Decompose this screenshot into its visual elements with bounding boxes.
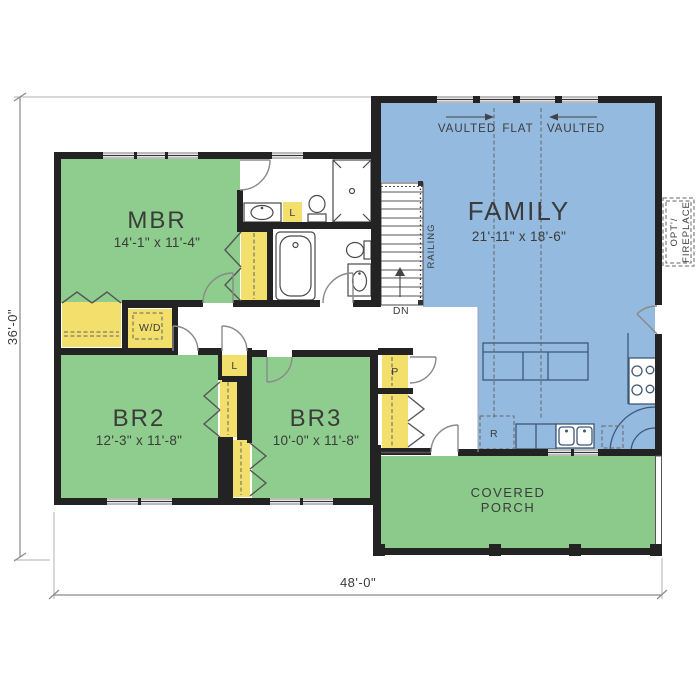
family-right-wall-upper xyxy=(655,96,662,305)
floor-plan: MBR 14'-1" x 11'-4" FAMILY 21'-11" x 18'… xyxy=(0,0,700,700)
br3-label: BR3 xyxy=(290,405,343,432)
width-dimension: 48'-0" xyxy=(340,575,376,590)
porch-post xyxy=(373,544,385,556)
master-toilet-tank xyxy=(308,214,326,222)
br2-label: BR2 xyxy=(113,405,166,432)
porch-label-line1: COVERED xyxy=(471,485,546,500)
family-label: FAMILY xyxy=(468,196,571,226)
linen-hall-label: L xyxy=(231,360,237,372)
porch-post xyxy=(489,544,501,556)
mbr-dims: 14'-1" x 11'-4" xyxy=(114,235,201,250)
bedroom-left-wall xyxy=(54,152,61,505)
height-dimension: 36'-0" xyxy=(5,309,20,345)
porch-bottom-wall xyxy=(373,548,662,555)
refrigerator-label: R xyxy=(490,428,498,440)
shower-drain xyxy=(350,189,355,194)
br3-dims: 10'-0" x 11'-8" xyxy=(273,433,360,448)
vaulted-left-label: VAULTED xyxy=(438,123,496,135)
mbr-corner-closet xyxy=(62,302,121,347)
br2-dims: 12'-3" x 11'-8" xyxy=(96,433,183,448)
hall-storage-closet xyxy=(382,394,408,448)
bedroom-top-wall xyxy=(54,152,378,159)
hall-bottom-wall xyxy=(378,448,431,455)
br3-right-wall xyxy=(370,350,378,505)
bath-window xyxy=(272,152,303,159)
family-left-wall xyxy=(371,96,381,222)
kitchen-window xyxy=(548,449,598,456)
linen-bath-label: L xyxy=(289,207,295,219)
master-toilet-bowl xyxy=(309,196,325,213)
railing-label: RAILING xyxy=(426,223,437,268)
down-label: DN xyxy=(393,305,409,317)
br3-window xyxy=(270,498,333,505)
pantry-label: P xyxy=(391,366,399,378)
family-dims: 21'-11" x 18'-6" xyxy=(472,229,566,244)
mbr-window xyxy=(103,152,198,159)
staircase xyxy=(381,181,423,305)
hall-toilet-bowl xyxy=(347,243,364,258)
mbr-label: MBR xyxy=(127,207,186,234)
bath-stair-wall xyxy=(371,222,381,307)
porch-label-line2: PORCH xyxy=(481,500,535,515)
range xyxy=(629,358,656,404)
flat-label: FLAT xyxy=(502,123,533,135)
vaulted-right-label: VAULTED xyxy=(547,123,605,135)
shower xyxy=(333,160,371,222)
washer-dryer-label: W/D xyxy=(139,322,161,334)
family-right-wall-lower xyxy=(655,334,662,456)
floor-plan-canvas: MBR 14'-1" x 11'-4" FAMILY 21'-11" x 18'… xyxy=(0,0,700,700)
fireplace-label-line2: FIREPLACE xyxy=(681,201,692,263)
hall-toilet-tank xyxy=(364,241,371,259)
fireplace-label-line1: OPT'/ xyxy=(669,218,680,247)
porch-post xyxy=(569,544,581,556)
family-windows xyxy=(437,96,598,103)
br2-window xyxy=(107,498,172,505)
porch-post xyxy=(650,544,662,556)
